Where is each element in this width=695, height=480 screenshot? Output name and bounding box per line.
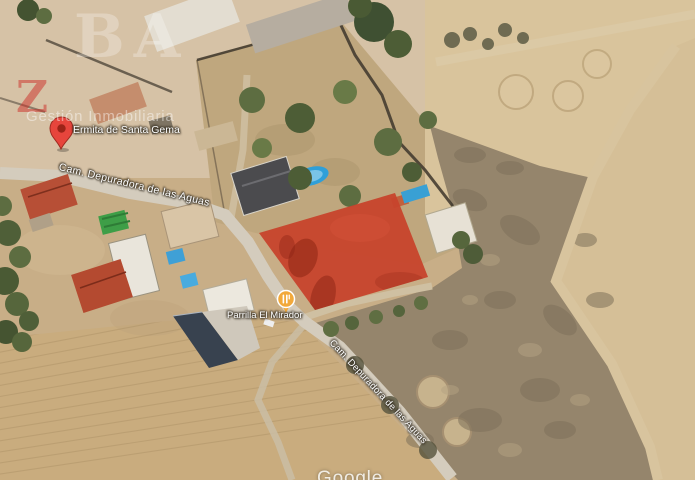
pin-label: Ermita de Santa Gema	[73, 124, 180, 136]
poi-label[interactable]: Parrilla El Mirador	[227, 310, 303, 321]
pin-dot	[57, 124, 65, 132]
google-attribution: Google	[317, 468, 383, 480]
satellite-map-canvas[interactable]	[0, 0, 695, 480]
fork-glyph	[283, 295, 285, 304]
map-viewport[interactable]: Cam. Depuradora de las Aguas Cam. Depura…	[0, 0, 695, 480]
dirt-patch	[15, 225, 105, 275]
utensil-glyph	[289, 295, 290, 300]
pin-shadow	[57, 148, 69, 152]
knife-glyph	[286, 295, 288, 304]
